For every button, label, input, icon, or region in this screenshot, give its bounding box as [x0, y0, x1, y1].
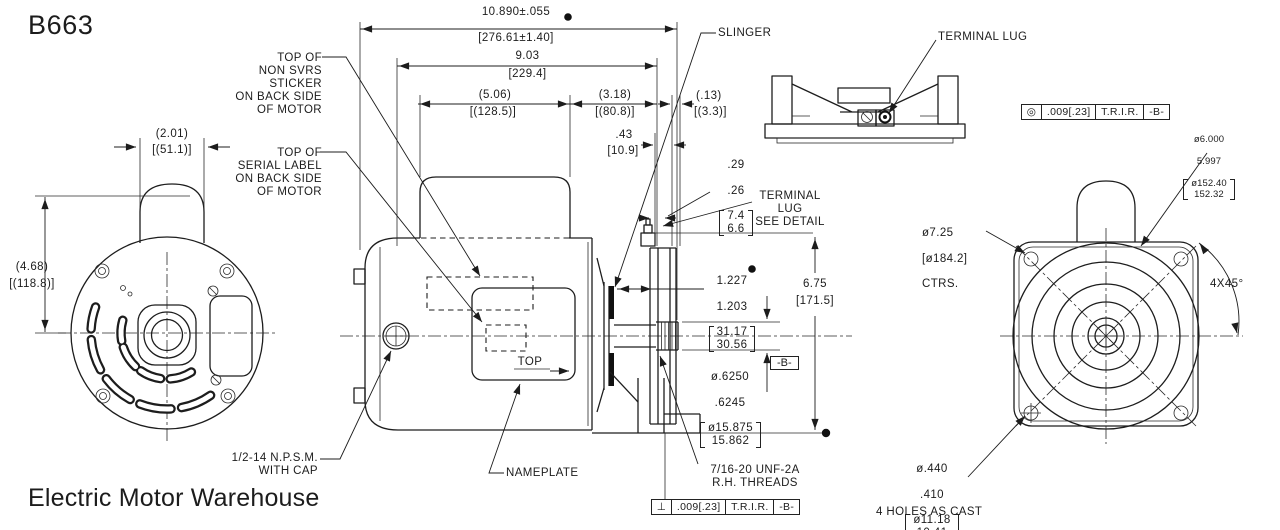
- label-shaft-threads: 7/16-20 UNF-2A R.H. THREADS: [695, 464, 815, 490]
- label-terminal-lug-ref: TERMINAL LUG SEE DETAIL: [748, 190, 832, 229]
- dim-cface-mm: [229.4]: [470, 68, 585, 81]
- dim-shaft-dia-inch-max: ø.6250: [700, 371, 760, 384]
- motor-drawing-svg: .ln{stroke:#1d1d1d;stroke-width:1.3;fill…: [0, 0, 1280, 530]
- dim-boss-inch: .43: [600, 129, 648, 142]
- dim-base-height-mm: [171.5]: [786, 295, 844, 308]
- label-nameplate: NAMEPLATE: [506, 467, 578, 480]
- dim-chamfer: 4X45°: [1210, 278, 1243, 291]
- fcf-conc-symbol: ◎: [1021, 104, 1042, 120]
- dim-boss-mm: [10.9]: [596, 145, 650, 158]
- datum-b-flag: -B-: [770, 356, 799, 370]
- dim-bolt-circle-inch: ø7.25: [922, 227, 967, 240]
- part-number: B663: [28, 12, 93, 39]
- fcf-perpendicularity: ⊥ .009[.23] T.R.I.R. -B-: [652, 499, 800, 515]
- dim-hole-dia-inch-max: ø.440: [900, 463, 964, 476]
- dim-height-inch: (4.68): [2, 261, 62, 274]
- dim-sticker-len-mm: [(128.5)]: [438, 106, 548, 119]
- dim-rear-mm: [(80.8)]: [565, 106, 665, 119]
- dim-spigot-mm: ø152.40152.32: [1183, 179, 1235, 201]
- dim-overall-mm: [276.61±1.40]: [430, 32, 602, 45]
- dim-shaft-ext-inch-max: 1.227: [704, 275, 760, 288]
- label-slinger: SLINGER: [718, 27, 771, 40]
- dim-lug-height-inch-max: .29: [710, 159, 762, 172]
- dim-gap-mm: [(3.3)]: [694, 106, 727, 119]
- dim-hole-dia-inch-min: .410: [900, 489, 964, 502]
- terminal-lug-side: [641, 219, 655, 246]
- fcf-conc-datum: -B-: [1143, 104, 1170, 120]
- dim-gap-inch: (.13): [696, 90, 722, 103]
- dim-spigot: ø6.000 5.997 ø152.40152.32: [1178, 124, 1240, 200]
- dim-shaft-ext-inch-min: 1.203: [704, 301, 760, 314]
- fcf-concentricity: ◎ .009[.23] T.R.I.R. -B-: [1022, 104, 1170, 120]
- dim-shaft-dia: ø.6250 .6245 ø15.87515.862: [700, 358, 760, 448]
- dim-spigot-inch-max: ø6.000: [1178, 135, 1240, 146]
- dim-bolt-circle-ctrs: CTRS.: [922, 278, 967, 291]
- dim-shaft-ext: 1.227 1.203 31.1730.56: [704, 262, 760, 352]
- dim-cface-inch: 9.03: [470, 50, 585, 63]
- ref-dot-base: [822, 429, 830, 437]
- fcf-conc-modifier: T.R.I.R.: [1095, 104, 1144, 120]
- dim-spigot-inch-min: 5.997: [1178, 157, 1240, 168]
- vendor-watermark: Electric Motor Warehouse: [28, 486, 319, 511]
- dim-overall-inch: 10.890±.055: [430, 6, 602, 19]
- dim-bolt-circle: ø7.25 [ø184.2] CTRS.: [922, 214, 967, 304]
- dim-shaft-ext-mm: 31.1730.56: [709, 326, 756, 352]
- non-svrs-sticker-outline: [427, 277, 533, 310]
- serial-label-outline: [486, 325, 526, 351]
- label-holes-as-cast: 4 HOLES AS CAST: [876, 506, 982, 519]
- dim-sticker-len-inch: (5.06): [440, 89, 550, 102]
- slinger-bottom: [609, 353, 614, 386]
- label-non-svrs-sticker: TOP OF NON SVRS STICKER ON BACK SIDE OF …: [230, 52, 322, 116]
- label-terminal-lug: TERMINAL LUG: [938, 31, 1027, 44]
- dim-shaft-dia-inch-min: .6245: [700, 397, 760, 410]
- technical-drawing-canvas: .ln{stroke:#1d1d1d;stroke-width:1.3;fill…: [0, 0, 1280, 530]
- label-npsm-cap: 1/2-14 N.P.S.M. WITH CAP: [218, 452, 318, 478]
- dim-dome-width-mm: [(51.1)]: [136, 144, 208, 157]
- fcf-conc-tolerance: .009[.23]: [1041, 104, 1097, 120]
- label-serial-label: TOP OF SERIAL LABEL ON BACK SIDE OF MOTO…: [226, 147, 322, 199]
- dim-shaft-dia-mm: ø15.87515.862: [700, 422, 761, 448]
- fcf-perp-datum: -B-: [773, 499, 800, 515]
- dim-height-mm: [(118.8)]: [0, 278, 64, 291]
- dim-bolt-circle-mm: [ø184.2]: [922, 253, 967, 266]
- fcf-perp-tolerance: .009[.23]: [671, 499, 727, 515]
- dim-base-height-inch: 6.75: [790, 278, 840, 291]
- fcf-perp-symbol: ⊥: [651, 499, 672, 515]
- dim-rear-inch: (3.18): [565, 89, 665, 102]
- slinger-top: [609, 286, 614, 319]
- motor-face-view: [968, 153, 1243, 477]
- nameplate-top-marker: TOP: [508, 356, 552, 369]
- terminal-lug-detail-view: [765, 40, 965, 143]
- fcf-perp-modifier: T.R.I.R.: [725, 499, 774, 515]
- dim-dome-width-inch: (2.01): [136, 128, 208, 141]
